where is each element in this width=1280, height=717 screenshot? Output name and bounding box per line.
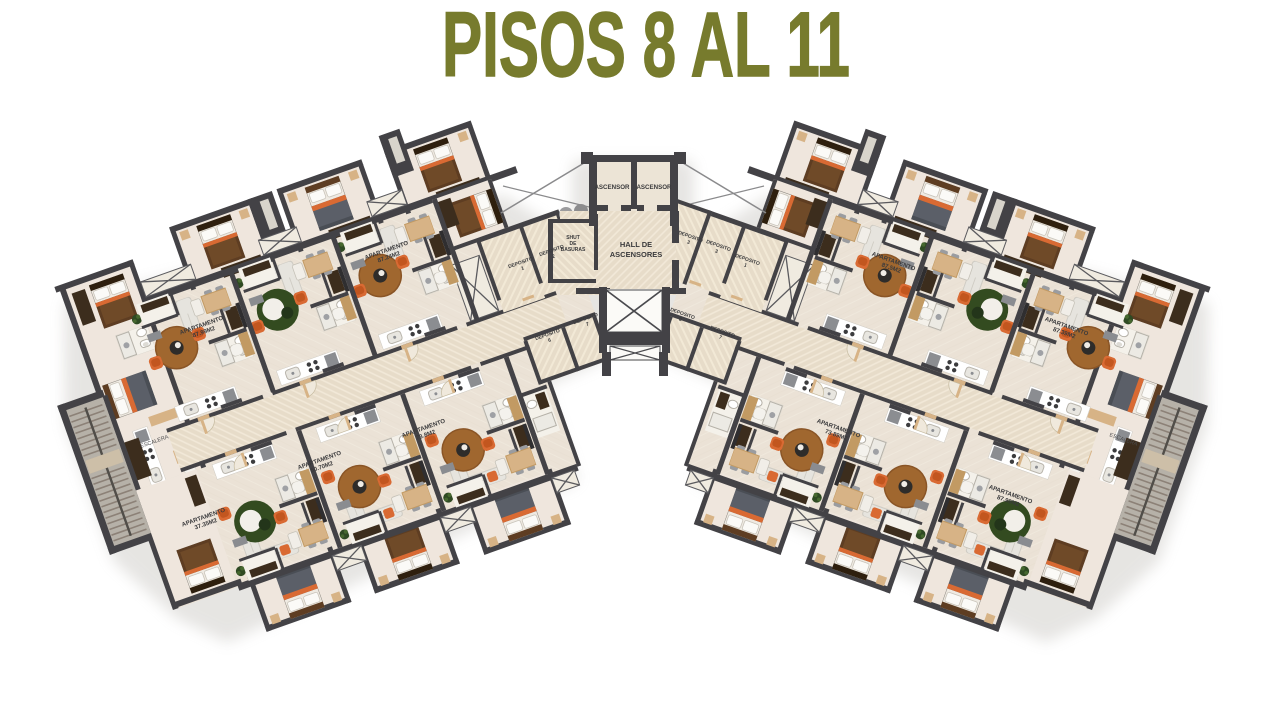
svg-text:PISOS 8 AL 11: PISOS 8 AL 11 <box>442 0 850 96</box>
svg-text:ASCENSOR: ASCENSOR <box>594 184 630 191</box>
svg-text:HALL DE: HALL DE <box>620 240 652 249</box>
svg-text:BASURAS: BASURAS <box>561 247 586 253</box>
svg-text:ASCENSORES: ASCENSORES <box>610 250 663 259</box>
svg-text:ASCENSOR: ASCENSOR <box>636 184 672 191</box>
